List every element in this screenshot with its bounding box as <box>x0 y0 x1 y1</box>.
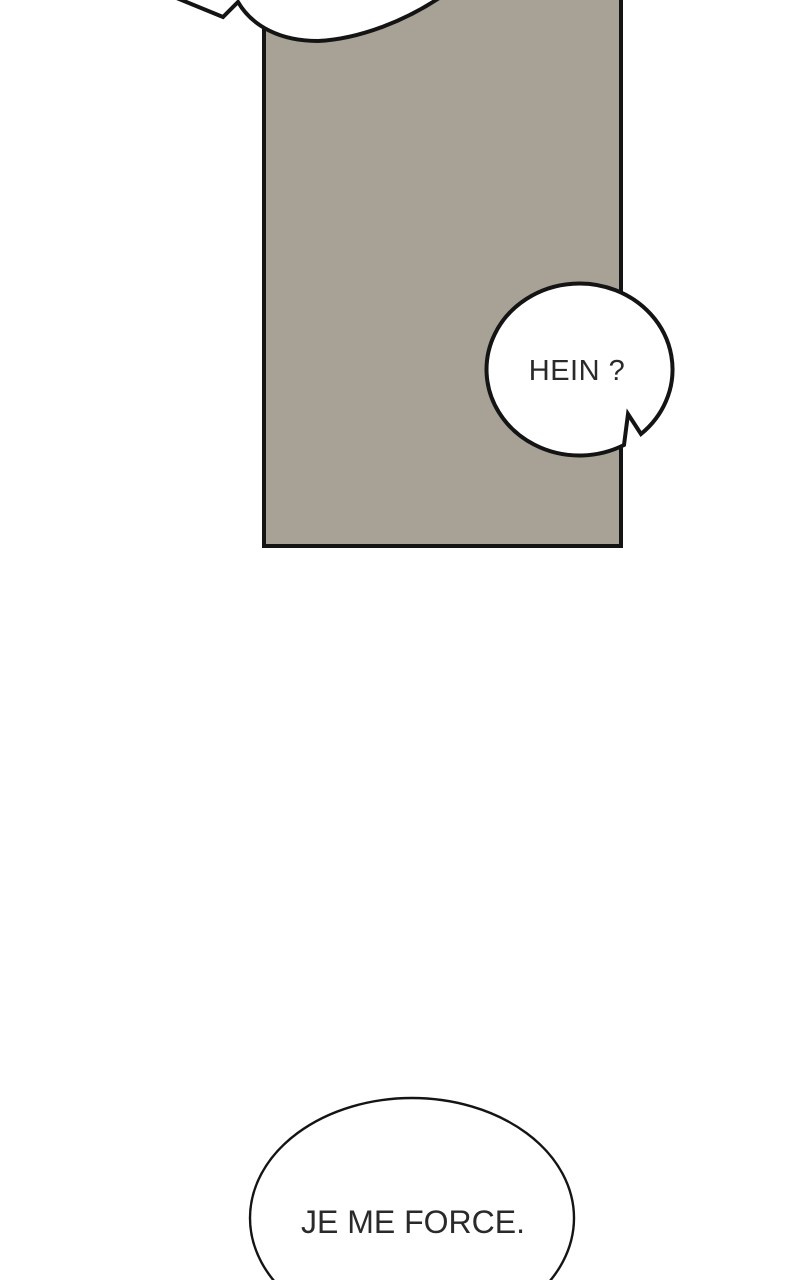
speech-text-je-me-force: JE ME FORCE. <box>263 1203 563 1241</box>
comic-panel-artwork <box>0 0 800 1280</box>
speech-bubble-bottom <box>250 1098 574 1280</box>
speech-text-hein: HEIN ? <box>477 354 677 388</box>
comic-panel <box>264 0 621 546</box>
comic-page: HEIN ? JE ME FORCE. <box>0 0 800 1280</box>
